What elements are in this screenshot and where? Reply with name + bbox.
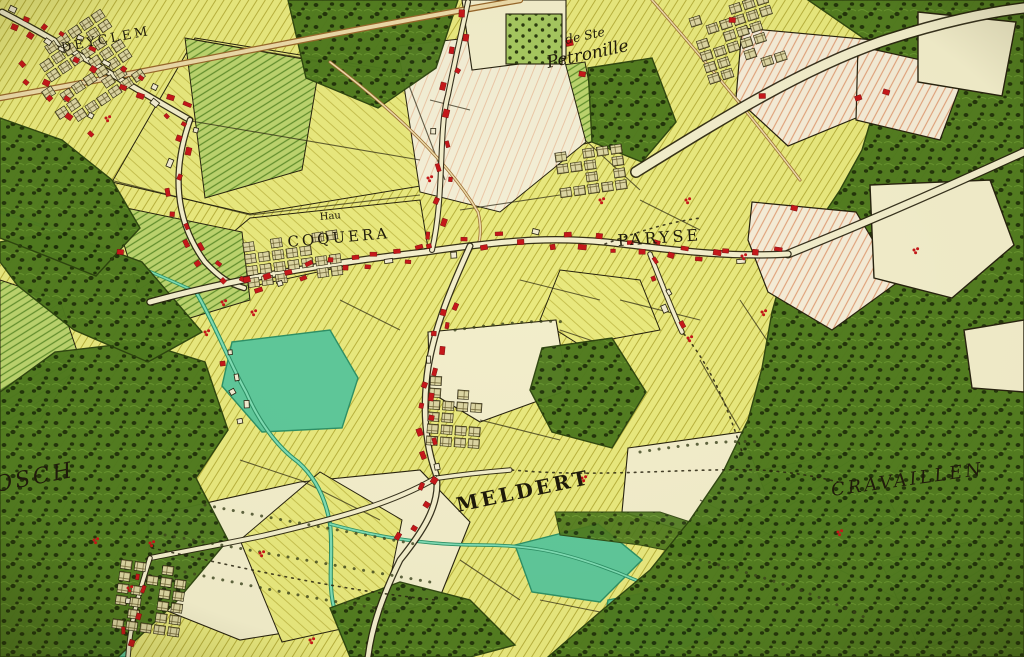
house	[117, 249, 124, 255]
garden-plot	[160, 577, 172, 587]
garden-plot	[596, 146, 608, 156]
house	[431, 128, 436, 134]
house	[759, 93, 766, 98]
garden-plot	[167, 627, 179, 637]
house	[428, 415, 434, 421]
house	[517, 239, 524, 244]
garden-plot	[172, 591, 184, 601]
garden-plot	[430, 376, 442, 386]
map-canvas: DEYCLEM de Ste Petronille Hau COQUERA PA…	[0, 0, 1024, 657]
house	[639, 249, 645, 254]
garden-plot	[146, 575, 158, 585]
garden-plot	[468, 439, 480, 449]
house	[237, 418, 243, 424]
house	[451, 252, 457, 258]
garden-plot	[442, 413, 454, 423]
house	[135, 574, 139, 580]
house	[234, 374, 239, 381]
house	[449, 47, 455, 54]
house	[578, 244, 587, 250]
house	[220, 361, 226, 366]
house	[405, 260, 411, 264]
garden-plot	[288, 259, 300, 269]
house	[695, 257, 702, 262]
house	[611, 249, 616, 253]
garden-plot	[317, 267, 329, 277]
garden-plot	[129, 597, 141, 607]
house	[393, 249, 400, 254]
garden-plot	[126, 621, 138, 631]
garden-plot	[456, 402, 468, 412]
garden-plot	[454, 438, 466, 448]
garden-plot	[601, 182, 613, 192]
house	[722, 249, 729, 254]
house	[328, 257, 333, 262]
forest-clearing	[964, 320, 1024, 392]
garden-plot	[134, 561, 146, 571]
house	[277, 280, 283, 286]
garden-plot	[246, 265, 258, 275]
map-svg: DEYCLEM de Ste Petronille Hau COQUERA PA…	[0, 0, 1024, 657]
garden-plot	[174, 579, 186, 589]
garden-plot	[331, 266, 343, 276]
house	[579, 71, 586, 77]
house	[532, 229, 540, 235]
house	[428, 393, 434, 402]
garden-plot	[574, 185, 586, 195]
garden-plot	[171, 603, 183, 613]
garden-plot	[441, 425, 453, 435]
garden-plot	[614, 168, 626, 178]
house	[244, 400, 249, 408]
house	[427, 356, 431, 363]
garden-plot	[469, 427, 481, 437]
house	[445, 322, 450, 329]
garden-plot	[140, 623, 152, 633]
house	[564, 232, 572, 237]
house	[125, 598, 130, 604]
garden-plot	[455, 426, 467, 436]
garden-plot	[157, 601, 169, 611]
garden-plot	[158, 589, 170, 599]
garden-plot	[584, 160, 596, 170]
house	[426, 232, 430, 240]
garden-plot	[457, 390, 469, 400]
garden-plot	[615, 180, 627, 190]
garden-plot	[570, 162, 582, 172]
house	[121, 627, 125, 634]
garden-plot	[169, 615, 181, 625]
garden-plot	[429, 400, 441, 410]
house	[459, 10, 465, 18]
house	[193, 127, 199, 133]
garden-plot	[119, 571, 131, 581]
garden-plot	[243, 242, 255, 252]
garden-plot	[155, 613, 167, 623]
house	[431, 331, 436, 336]
house	[752, 249, 758, 255]
house	[729, 17, 736, 22]
garden-plot	[427, 424, 439, 434]
house	[596, 233, 603, 239]
garden-plot	[587, 183, 599, 193]
house	[352, 255, 359, 260]
garden-plot	[260, 263, 272, 273]
house	[426, 243, 432, 248]
house	[480, 244, 488, 250]
garden-plot	[440, 437, 452, 447]
house	[370, 252, 377, 256]
garden-plot	[612, 156, 624, 166]
garden-plot	[258, 251, 270, 261]
house	[170, 212, 175, 217]
house	[463, 34, 469, 41]
garden-plot	[555, 152, 567, 162]
house	[448, 177, 452, 182]
garden-plot	[270, 238, 282, 248]
garden-plot	[610, 144, 622, 154]
house	[495, 232, 503, 236]
house	[365, 265, 371, 269]
garden-plot	[315, 256, 327, 266]
garden-plot	[582, 148, 594, 158]
house	[343, 265, 349, 270]
garden-plot	[556, 164, 568, 174]
house	[434, 463, 440, 470]
house	[419, 403, 424, 409]
house	[550, 244, 556, 250]
garden-plot	[586, 172, 598, 182]
garden-plot	[162, 565, 174, 575]
house	[461, 237, 467, 241]
house	[713, 249, 722, 256]
garden-plot	[443, 401, 455, 411]
garden-plot	[560, 187, 572, 197]
house	[384, 258, 393, 263]
garden-plot	[244, 253, 256, 263]
garden-plot	[120, 559, 132, 569]
garden-plot	[272, 250, 284, 260]
house	[439, 346, 445, 355]
garden-plot	[470, 403, 482, 413]
garden-plot	[274, 261, 286, 271]
garden-plot	[153, 625, 165, 635]
house	[228, 350, 232, 355]
label-hamlet-abbr: Hau	[319, 210, 342, 223]
